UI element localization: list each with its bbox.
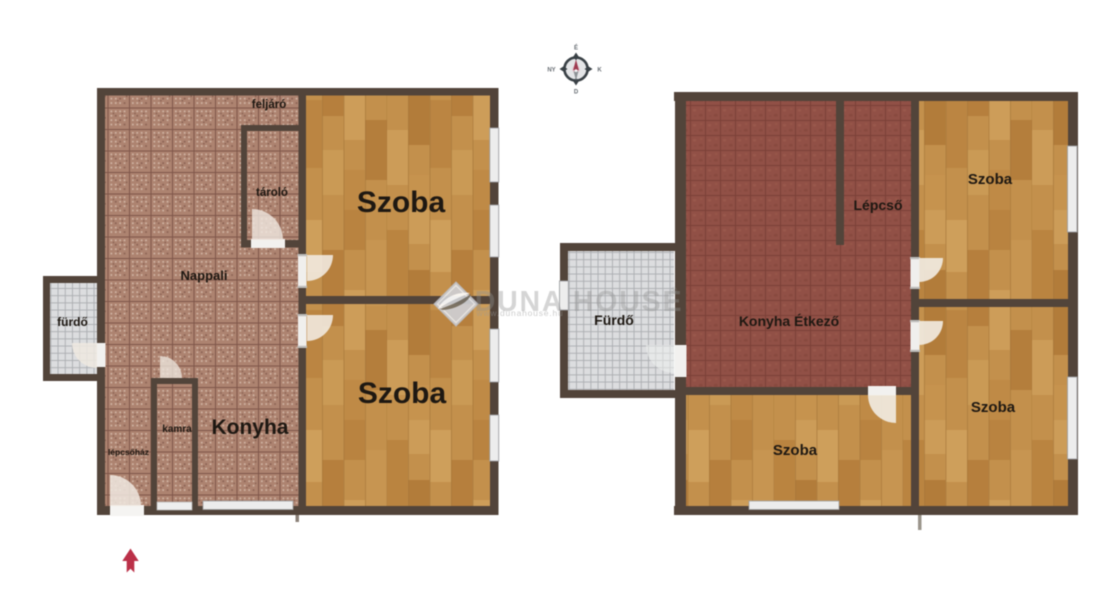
svg-text:Lépcső: Lépcső — [853, 197, 902, 213]
svg-text:Szoba: Szoba — [358, 377, 447, 410]
svg-text:Nappali: Nappali — [181, 268, 228, 283]
svg-text:Szoba: Szoba — [357, 186, 446, 219]
svg-text:Konyha Étkező: Konyha Étkező — [739, 313, 839, 329]
svg-text:Szoba: Szoba — [968, 171, 1013, 188]
svg-text:www.dunahouse.hu: www.dunahouse.hu — [476, 308, 564, 318]
svg-text:NY: NY — [547, 67, 555, 73]
svg-text:Szoba: Szoba — [971, 399, 1016, 416]
svg-text:Szoba: Szoba — [773, 442, 818, 459]
svg-text:feljáró: feljáró — [252, 99, 287, 111]
svg-text:®: ® — [671, 286, 677, 295]
svg-text:lépcsőház: lépcsőház — [108, 447, 149, 457]
svg-text:Konyha: Konyha — [211, 416, 288, 439]
svg-text:tároló: tároló — [256, 187, 288, 199]
svg-text:K: K — [597, 67, 602, 73]
svg-text:fürdő: fürdő — [57, 315, 88, 329]
svg-text:kamra: kamra — [162, 424, 192, 435]
svg-text:É: É — [574, 44, 578, 52]
svg-text:D: D — [574, 90, 579, 96]
